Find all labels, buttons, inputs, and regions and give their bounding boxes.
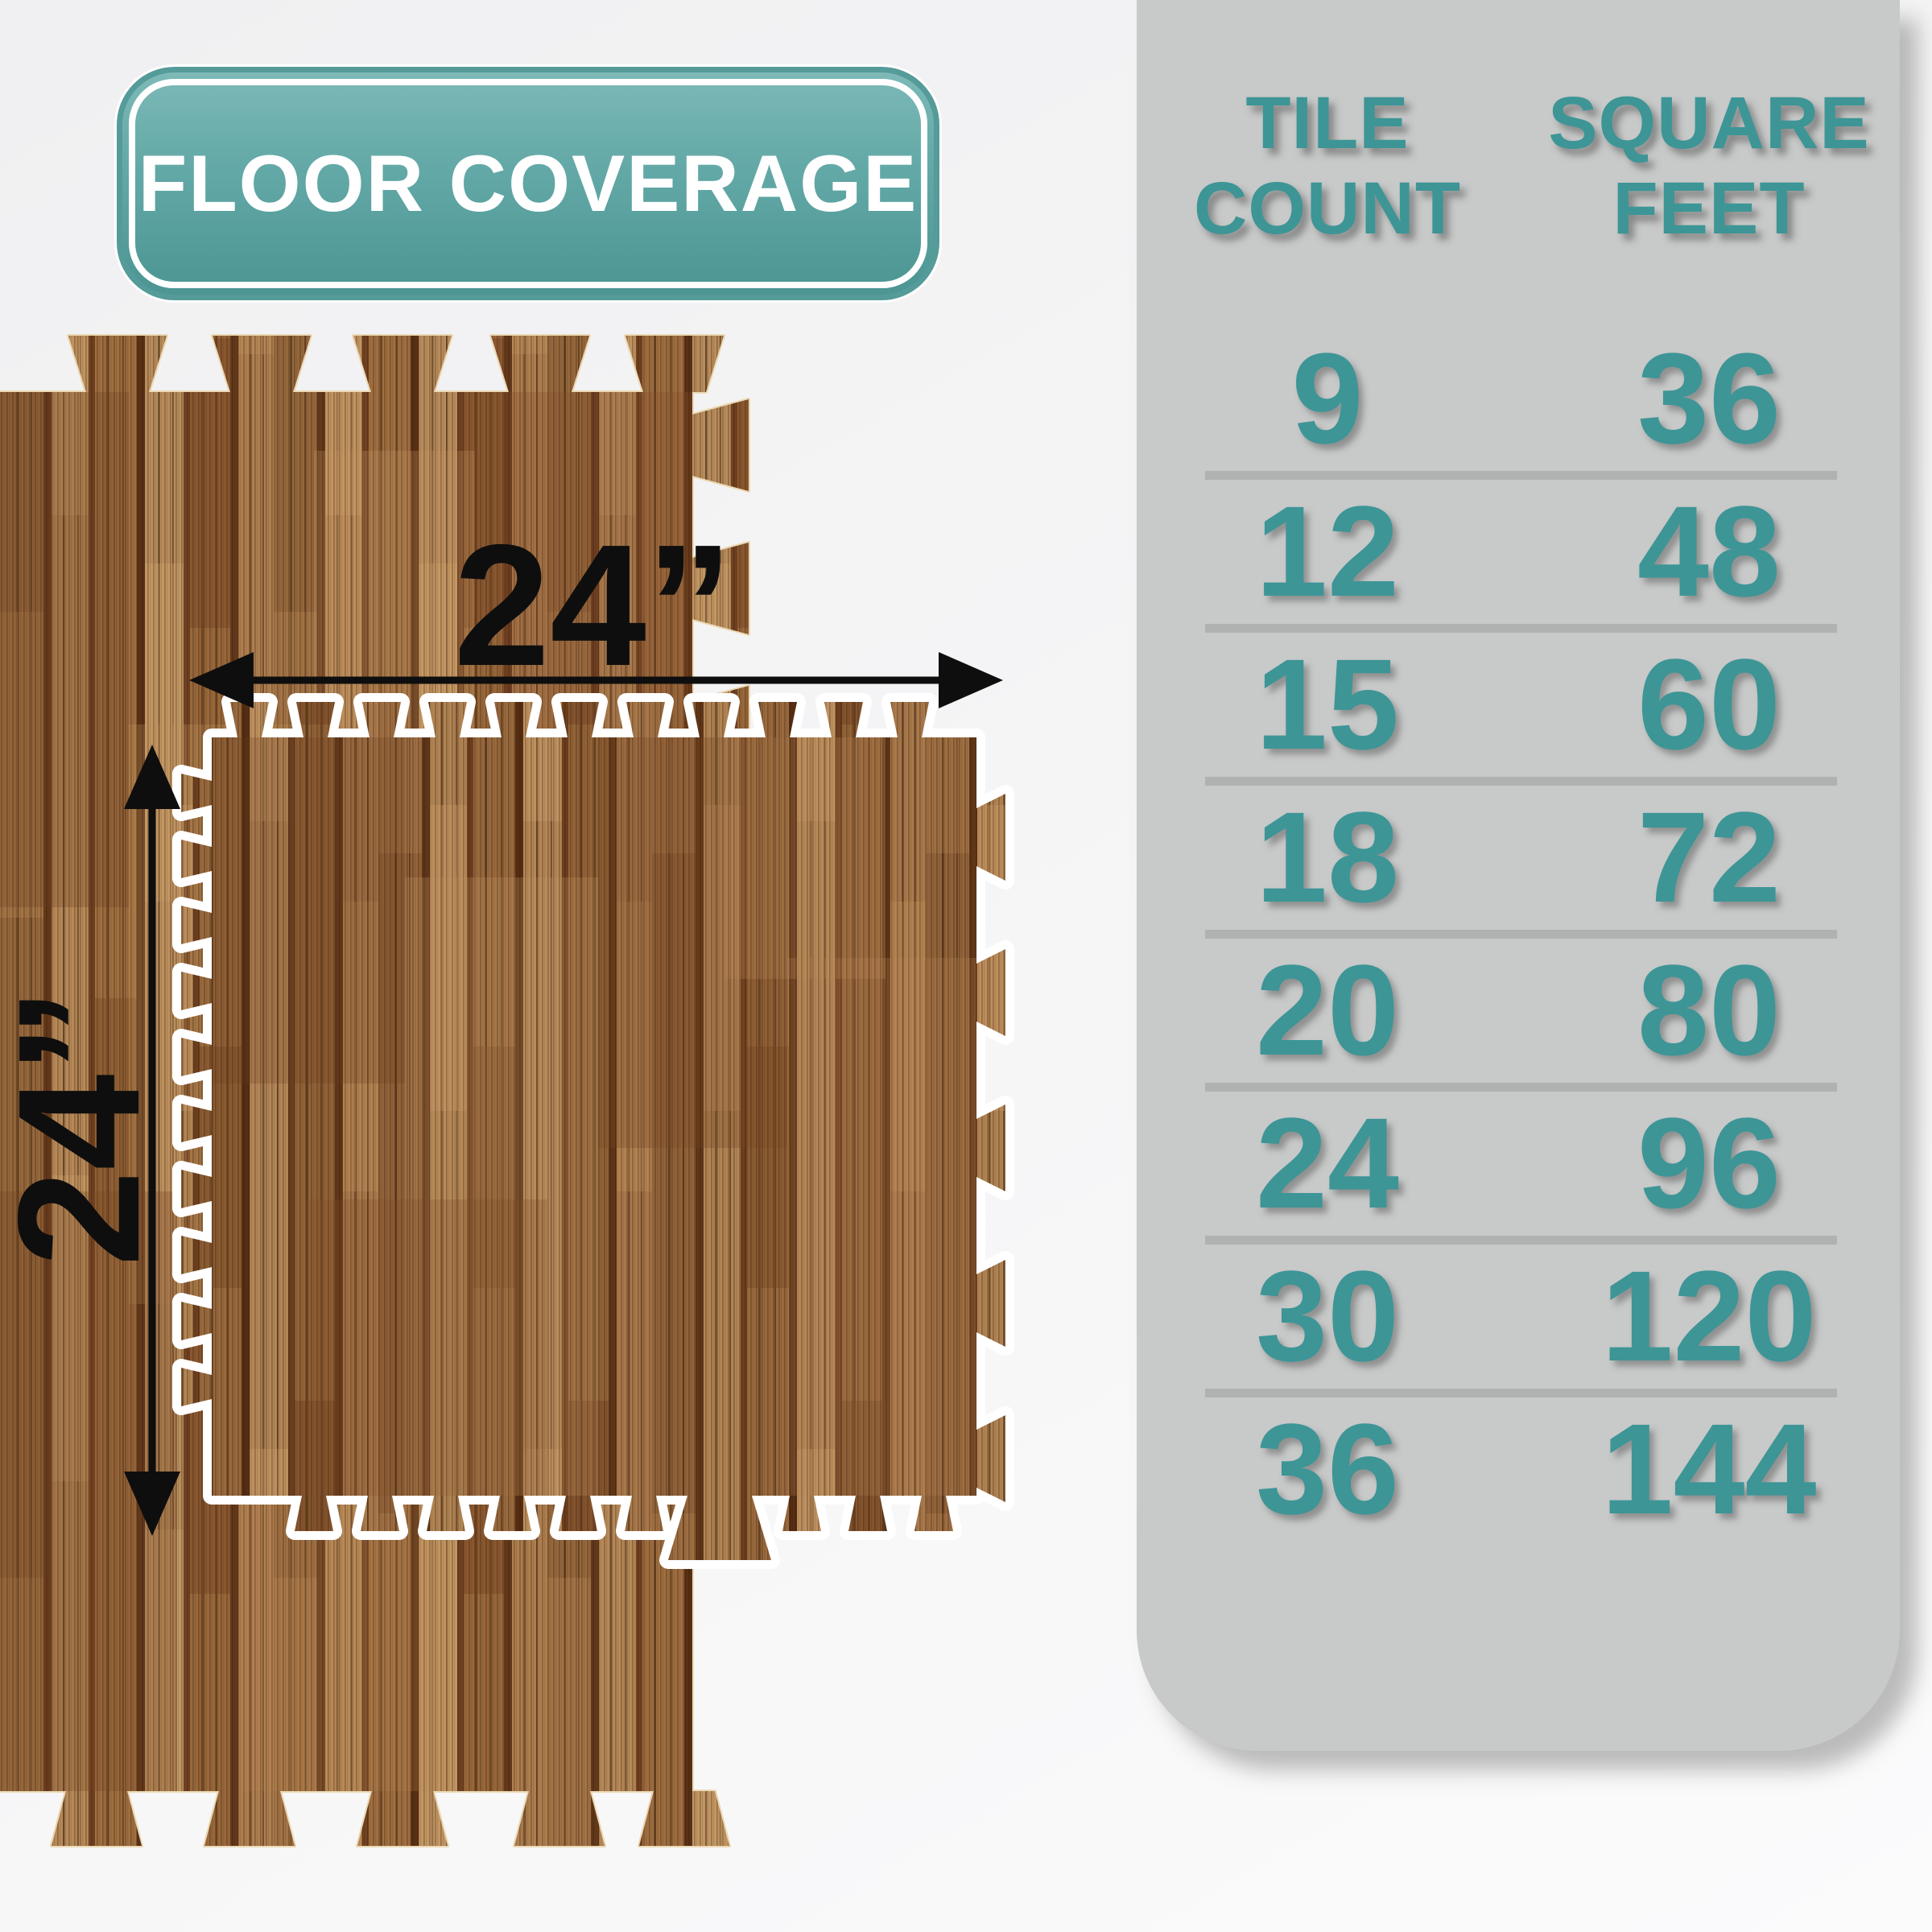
front-foam-tile bbox=[181, 702, 1005, 1560]
square-feet-value: 144 bbox=[1518, 1393, 1900, 1546]
table-row: 15 60 bbox=[1137, 628, 1900, 781]
tile-count-value: 36 bbox=[1137, 1393, 1518, 1546]
square-feet-value: 120 bbox=[1518, 1240, 1900, 1393]
square-feet-value: 60 bbox=[1518, 628, 1900, 781]
square-feet-value: 36 bbox=[1518, 322, 1900, 475]
table-row: 18 72 bbox=[1137, 781, 1900, 934]
coverage-panel: TILE COUNT SQUARE FEET 9 36 12 48 15 60 bbox=[1137, 0, 1900, 1751]
square-feet-value: 72 bbox=[1518, 781, 1900, 934]
infographic-canvas: 24” 24” FLOOR COVERAGE TILE COUNT SQUARE… bbox=[0, 0, 1932, 1932]
table-row: 36 144 bbox=[1137, 1393, 1900, 1546]
table-row: 20 80 bbox=[1137, 934, 1900, 1087]
floor-coverage-badge: FLOOR COVERAGE bbox=[117, 67, 939, 300]
tile-count-value: 24 bbox=[1137, 1087, 1518, 1240]
square-feet-value: 48 bbox=[1518, 475, 1900, 628]
tile-count-value: 20 bbox=[1137, 934, 1518, 1087]
tile-count-value: 18 bbox=[1137, 781, 1518, 934]
tile-count-value: 15 bbox=[1137, 628, 1518, 781]
header-line: SQUARE bbox=[1518, 80, 1900, 166]
table-header-square-feet: SQUARE FEET bbox=[1518, 80, 1900, 251]
tile-count-value: 30 bbox=[1137, 1240, 1518, 1393]
square-feet-value: 96 bbox=[1518, 1087, 1900, 1240]
header-line: COUNT bbox=[1137, 166, 1518, 251]
tile-count-value: 9 bbox=[1137, 322, 1518, 475]
tile-count-value: 12 bbox=[1137, 475, 1518, 628]
table-row: 30 120 bbox=[1137, 1240, 1900, 1393]
table-row: 12 48 bbox=[1137, 475, 1900, 628]
table-header-tile-count: TILE COUNT bbox=[1137, 80, 1518, 251]
header-line: TILE bbox=[1137, 80, 1518, 166]
height-dimension-label: 24” bbox=[0, 988, 175, 1267]
badge-label: FLOOR COVERAGE bbox=[138, 138, 919, 229]
width-dimension-label: 24” bbox=[454, 508, 733, 702]
table-header-row: TILE COUNT SQUARE FEET bbox=[1137, 80, 1900, 251]
table-body: 9 36 12 48 15 60 18 72 20 80 24 96 bbox=[1137, 322, 1900, 1546]
table-row: 9 36 bbox=[1137, 322, 1900, 475]
header-line: FEET bbox=[1518, 166, 1900, 251]
table-row: 24 96 bbox=[1137, 1087, 1900, 1240]
square-feet-value: 80 bbox=[1518, 934, 1900, 1087]
